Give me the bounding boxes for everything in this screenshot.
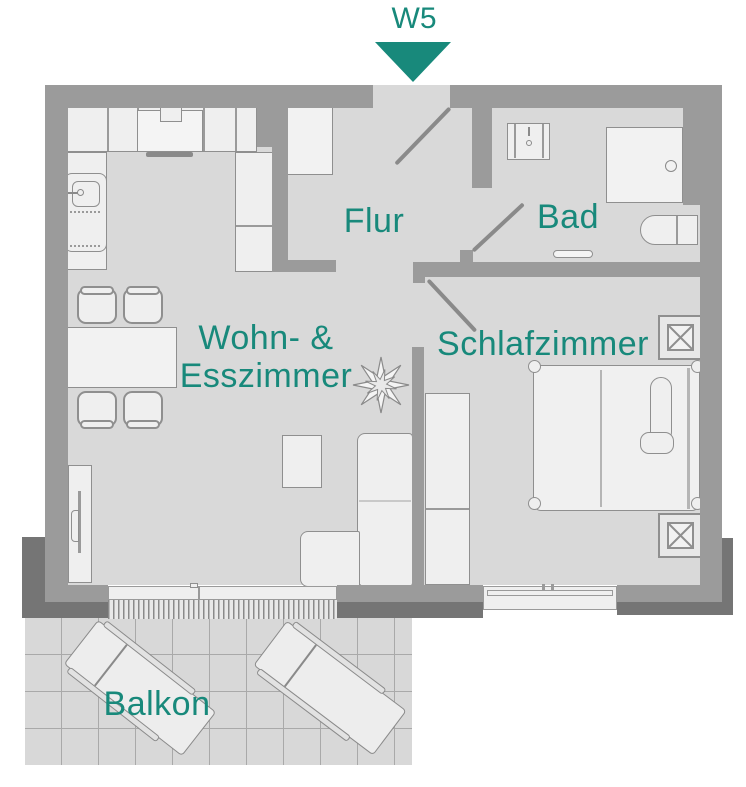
room-label-line: Esszimmer [180, 357, 353, 395]
bed-post [528, 497, 541, 510]
sofa-chaise [357, 433, 413, 587]
wall-segment [460, 250, 473, 262]
bath-mat [553, 250, 593, 258]
sofa-corner [300, 531, 360, 587]
chair-back [80, 286, 114, 295]
chair [77, 391, 117, 427]
bedroom-cabinet [425, 393, 470, 585]
wall-segment [412, 347, 424, 585]
room-label-line: Wohn- & [180, 319, 353, 357]
wall-shadow [617, 602, 733, 615]
chair [77, 288, 117, 324]
counter-divider [107, 107, 109, 151]
sink-drainer [70, 245, 100, 247]
washbasin-faucet-icon [528, 127, 530, 136]
door-handle [190, 583, 198, 588]
stove-control [160, 107, 182, 122]
wall-segment [472, 108, 492, 188]
shaft-symbol-icon [658, 315, 703, 360]
wall-segment [683, 108, 700, 205]
bed-headboard [687, 368, 690, 509]
chair [123, 288, 163, 324]
toilet-cistern-line [676, 216, 678, 244]
wall-segment [617, 585, 722, 602]
chair-back [126, 286, 160, 295]
window-tick [542, 584, 545, 590]
counter-divider [203, 107, 205, 151]
room-label-balkon: Balkon [104, 685, 211, 723]
lounger-head-divider [94, 644, 127, 686]
wall-shadow [722, 538, 733, 615]
wall-segment [45, 85, 373, 108]
entrance-arrow-icon [375, 42, 451, 82]
room-label-bad: Bad [537, 198, 599, 236]
washbasin-edge [542, 124, 544, 158]
room-label-wohnzimmer: Wohn- & Esszimmer [180, 319, 353, 395]
wall-segment [700, 108, 722, 585]
lounger-head-divider [284, 644, 316, 686]
shower-drain-icon [665, 160, 677, 172]
wall-segment [413, 277, 425, 283]
faucet-icon [77, 189, 84, 196]
shaft-symbol-icon [658, 513, 703, 558]
wall-segment [413, 262, 722, 277]
hallway-wardrobe [287, 107, 333, 175]
balcony-grating [108, 600, 337, 619]
balcony-sliding-door [108, 586, 337, 600]
wall-segment [337, 585, 483, 602]
wall-segment [45, 108, 68, 585]
tv-mount [71, 510, 79, 542]
wall-segment [45, 585, 108, 602]
window-glass [487, 590, 613, 596]
wall-segment [450, 85, 722, 108]
bed-mattress-divider [600, 370, 602, 507]
washbasin-drain-icon [526, 140, 532, 146]
plant-icon [352, 356, 410, 414]
cabinet-divider [426, 508, 469, 510]
room-label-schlafzimmer: Schlafzimmer [437, 325, 649, 363]
entrance-niche-floor [373, 85, 450, 108]
dining-table [62, 327, 177, 388]
washbasin-edge [514, 124, 516, 158]
room-label-flur: Flur [344, 202, 405, 240]
chair-back [126, 420, 160, 429]
door-panel-divider [198, 587, 200, 599]
wall-segment [272, 260, 336, 272]
wall-segment [257, 108, 288, 147]
wall-shadow [337, 602, 483, 618]
sink-drainer [70, 211, 100, 213]
chair [123, 391, 163, 427]
wall-segment [272, 147, 288, 260]
sink-basin [72, 181, 100, 207]
cushion [640, 432, 674, 454]
coffee-table [282, 435, 322, 488]
floor-plan: W5 [0, 0, 746, 787]
toilet [640, 215, 698, 245]
unit-label: W5 [392, 2, 437, 36]
wall-shadow [22, 602, 108, 618]
bed [533, 365, 700, 511]
stove-handle [146, 152, 193, 157]
window-tick [551, 584, 554, 590]
chair-back [80, 420, 114, 429]
counter-divider [235, 107, 237, 151]
sofa-seam [359, 500, 411, 502]
